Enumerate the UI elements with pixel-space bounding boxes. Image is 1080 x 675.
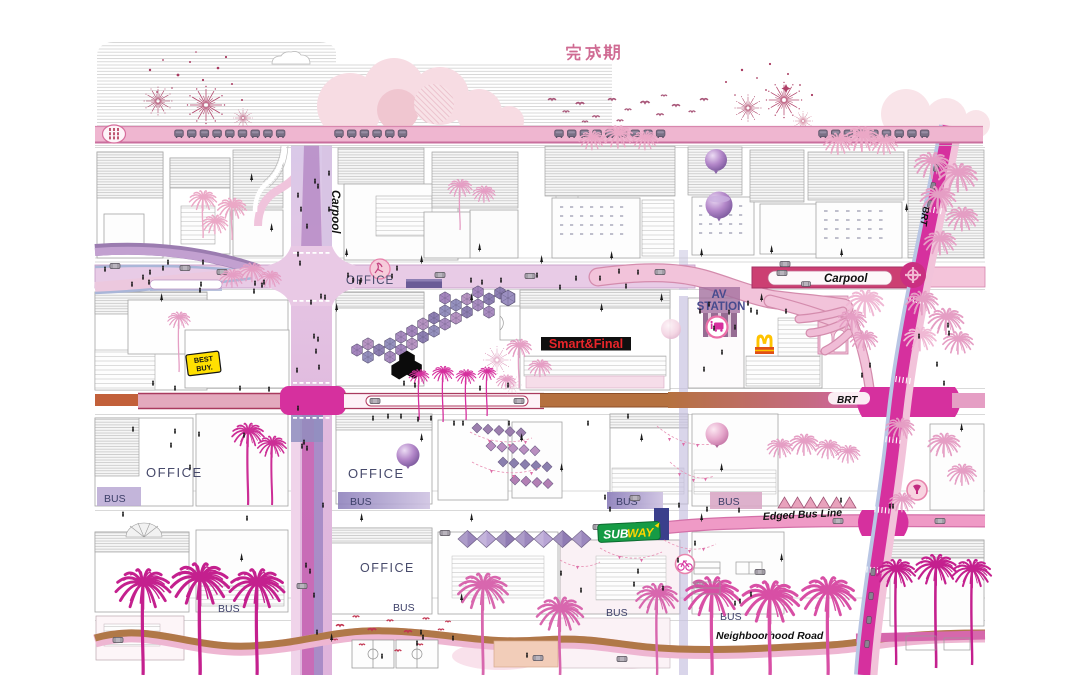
svg-text:BUS: BUS bbox=[104, 493, 126, 505]
svg-text:WAY: WAY bbox=[627, 525, 655, 540]
svg-text:BUS: BUS bbox=[393, 602, 415, 614]
svg-text:AV: AV bbox=[711, 289, 726, 301]
svg-text:Smart&Final: Smart&Final bbox=[549, 337, 623, 351]
svg-text:SUB: SUB bbox=[603, 526, 629, 541]
svg-text:BRT: BRT bbox=[837, 395, 858, 406]
svg-text:Carpool: Carpool bbox=[329, 190, 341, 234]
svg-text:STATION: STATION bbox=[697, 301, 746, 313]
svg-text:BUS: BUS bbox=[606, 607, 628, 619]
svg-text:OFFICE: OFFICE bbox=[146, 465, 203, 480]
svg-text:OFFICE: OFFICE bbox=[348, 466, 405, 481]
svg-text:OFFICE: OFFICE bbox=[360, 561, 415, 575]
svg-text:Carpool: Carpool bbox=[824, 273, 868, 285]
svg-text:BUS: BUS bbox=[718, 496, 740, 508]
svg-text:BUS: BUS bbox=[350, 496, 372, 508]
svg-text:BUS: BUS bbox=[218, 603, 240, 615]
